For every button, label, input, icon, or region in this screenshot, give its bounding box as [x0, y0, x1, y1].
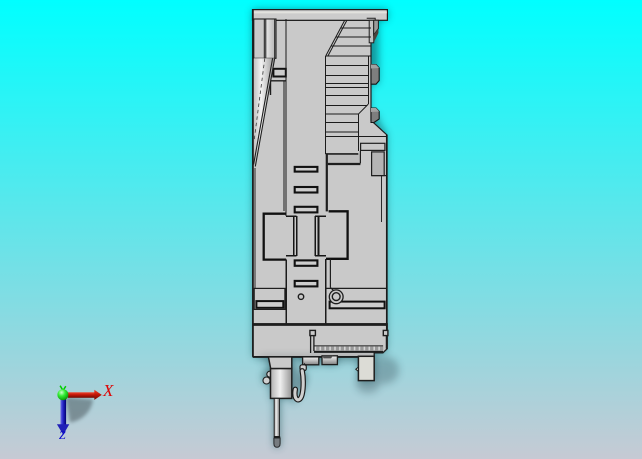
svg-text:Z: Z: [59, 428, 66, 442]
svg-text:X: X: [102, 381, 114, 400]
